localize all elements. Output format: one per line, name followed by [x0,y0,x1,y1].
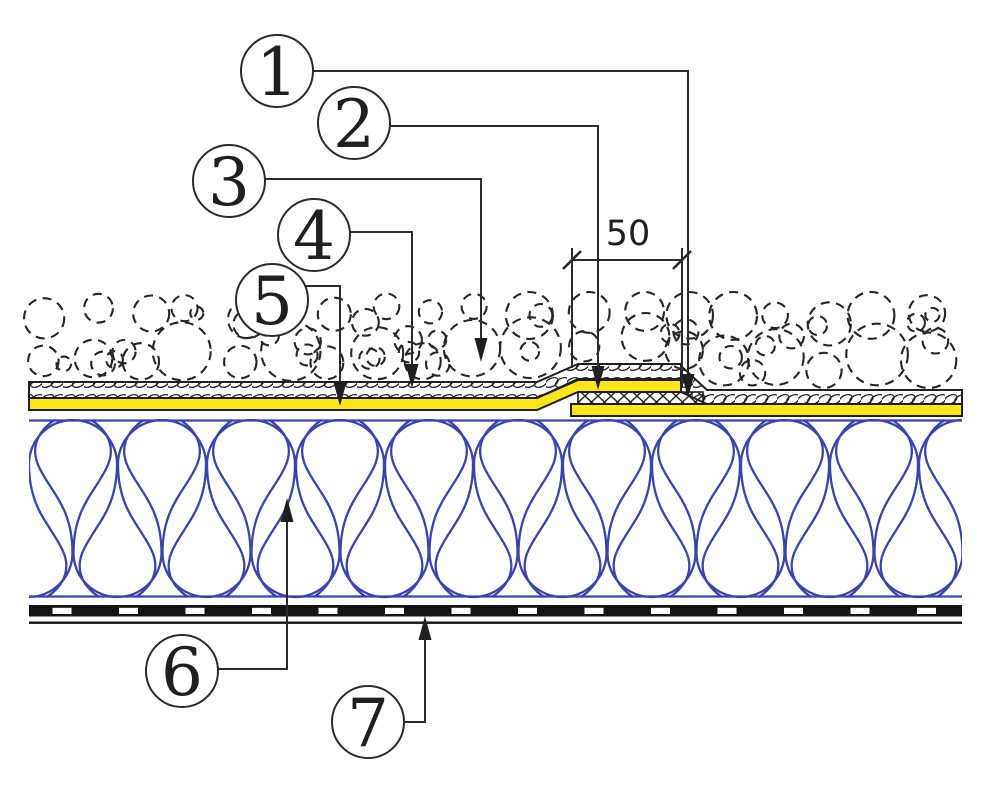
callout-2-label: 2 [333,86,375,163]
vapour-barrier-band [29,605,962,617]
barrier-dash [319,608,338,614]
insulation-loop [741,420,829,597]
lower-membrane-layer [571,404,962,416]
gravel-stone [75,340,113,378]
barrier-dash [518,608,537,614]
insulation-loop [252,420,340,597]
gravel-stone [530,304,553,327]
arrowhead-6 [281,498,294,522]
dimension-value: 50 [606,214,651,254]
gravel-stone [748,329,804,385]
barrier-dash [452,608,471,614]
callout-4-label: 4 [293,198,335,275]
gravel-stone [359,349,379,369]
barrier-dash [585,608,604,614]
gravel-stone [720,346,742,368]
gravel-stone [925,308,939,322]
gravel-stone [569,292,610,333]
gravel-stone [756,336,775,355]
barrier-dash [851,608,870,614]
leader-line-7 [404,638,425,722]
barrier-dash [53,608,72,614]
insulation-loop [74,420,162,597]
insulation-loop [341,420,429,597]
barrier-dash [119,608,138,614]
callout-6-label: 6 [161,634,203,711]
gravel-stone [808,302,851,345]
insulation-loop [0,420,73,597]
insulation-loop [430,420,518,597]
gravel-stone [462,294,487,319]
barrier-dash [651,608,670,614]
gravel-stone [625,292,664,331]
gravel-stone [762,303,788,329]
construction-detail-diagram: 50 1 2 3 4 5 6 7 [0,0,1000,795]
insulation-loop [118,420,206,597]
callout-3-label: 3 [208,144,250,221]
gravel-stone [444,320,500,376]
gravel-stone [808,316,827,335]
insulation-loop [608,420,696,597]
gravel-stone [709,292,757,340]
insulation-loop [519,420,607,597]
insulation-loop [875,420,963,597]
barrier-dash [718,608,737,614]
gravel-stone [923,328,949,354]
callout-5-label: 5 [251,263,293,340]
gravel-stone [153,322,211,380]
gravel-stone [428,331,446,349]
gravel-stone [500,317,561,378]
insulation-loop [163,420,251,597]
insulation-layer [0,420,1000,597]
gravel-stone [520,342,539,361]
barrier-dash [186,608,205,614]
leader-line-5 [306,286,340,384]
insulation-loop [29,420,117,597]
barrier-dash [917,608,936,614]
gravel-stone [112,340,135,363]
gravel-stone [426,352,449,375]
gravel-stone [806,353,841,388]
gravel-stone [399,342,419,362]
barrier-dash [385,608,404,614]
gravel-stone [84,294,113,323]
insulation-loop [474,420,562,597]
insulation-loop [652,420,740,597]
gravel-stone [172,295,198,321]
insulation-loop [697,420,785,597]
gravel-stone [318,298,351,331]
insulation-loop [563,420,651,597]
barrier-dash [784,608,803,614]
insulation-loop [786,420,874,597]
deck-line [29,622,962,624]
gravel-stone [133,296,169,332]
gravel-ballast-layer [24,292,956,388]
insulation-loop [296,420,384,597]
gravel-stone [569,331,599,361]
gravel-stone [848,292,895,339]
callout-7-label: 7 [347,685,389,762]
gravel-stone [28,346,58,376]
detail-drawing-canvas: 50 1 2 3 4 5 6 7 [0,0,1000,795]
callout-1-label: 1 [256,34,298,111]
gravel-stone [374,294,400,320]
insulation-loop [385,420,473,597]
gravel-stone [224,346,256,378]
gravel-stone [419,300,442,323]
insulation-loop [830,420,918,597]
vapour-barrier-layer [29,605,962,617]
arrowhead-7 [419,616,432,640]
barrier-dash [252,608,271,614]
insulation-loop [207,420,295,597]
arrowhead-3 [475,338,488,362]
gravel-stone [24,298,64,338]
